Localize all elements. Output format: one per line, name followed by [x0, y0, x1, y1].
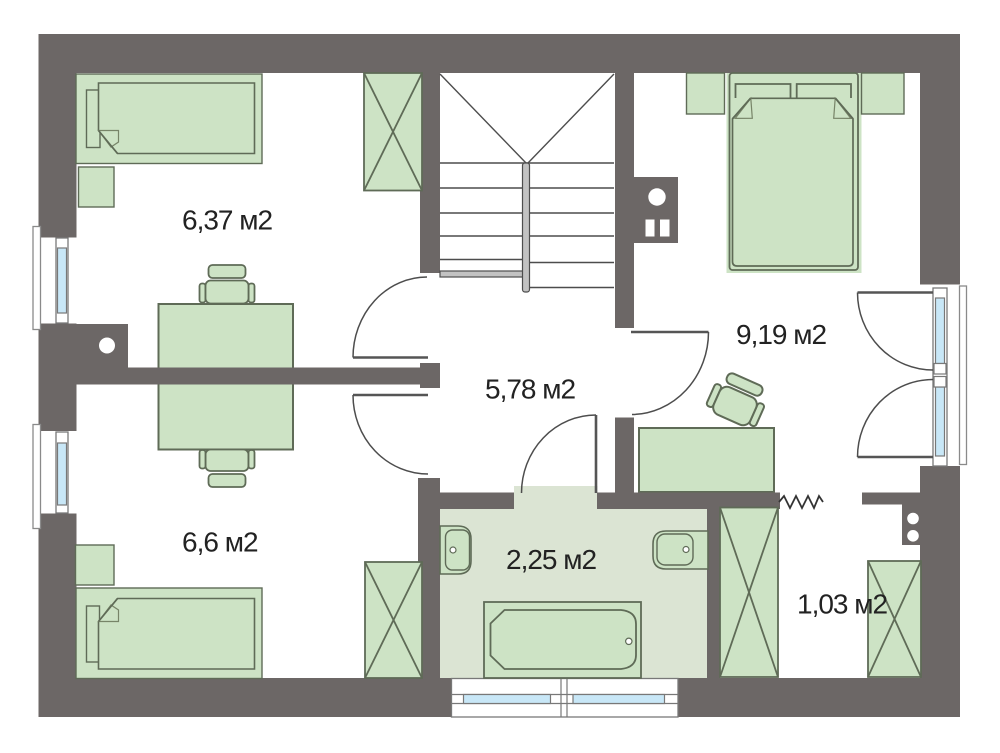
- svg-text:6,37 м2: 6,37 м2: [182, 205, 273, 236]
- svg-text:5,78 м2: 5,78 м2: [485, 374, 576, 405]
- svg-text:2,25 м2: 2,25 м2: [506, 544, 597, 575]
- svg-text:1,03 м2: 1,03 м2: [797, 589, 888, 620]
- svg-text:6,6 м2: 6,6 м2: [182, 527, 258, 558]
- svg-text:9,19 м2: 9,19 м2: [736, 319, 827, 350]
